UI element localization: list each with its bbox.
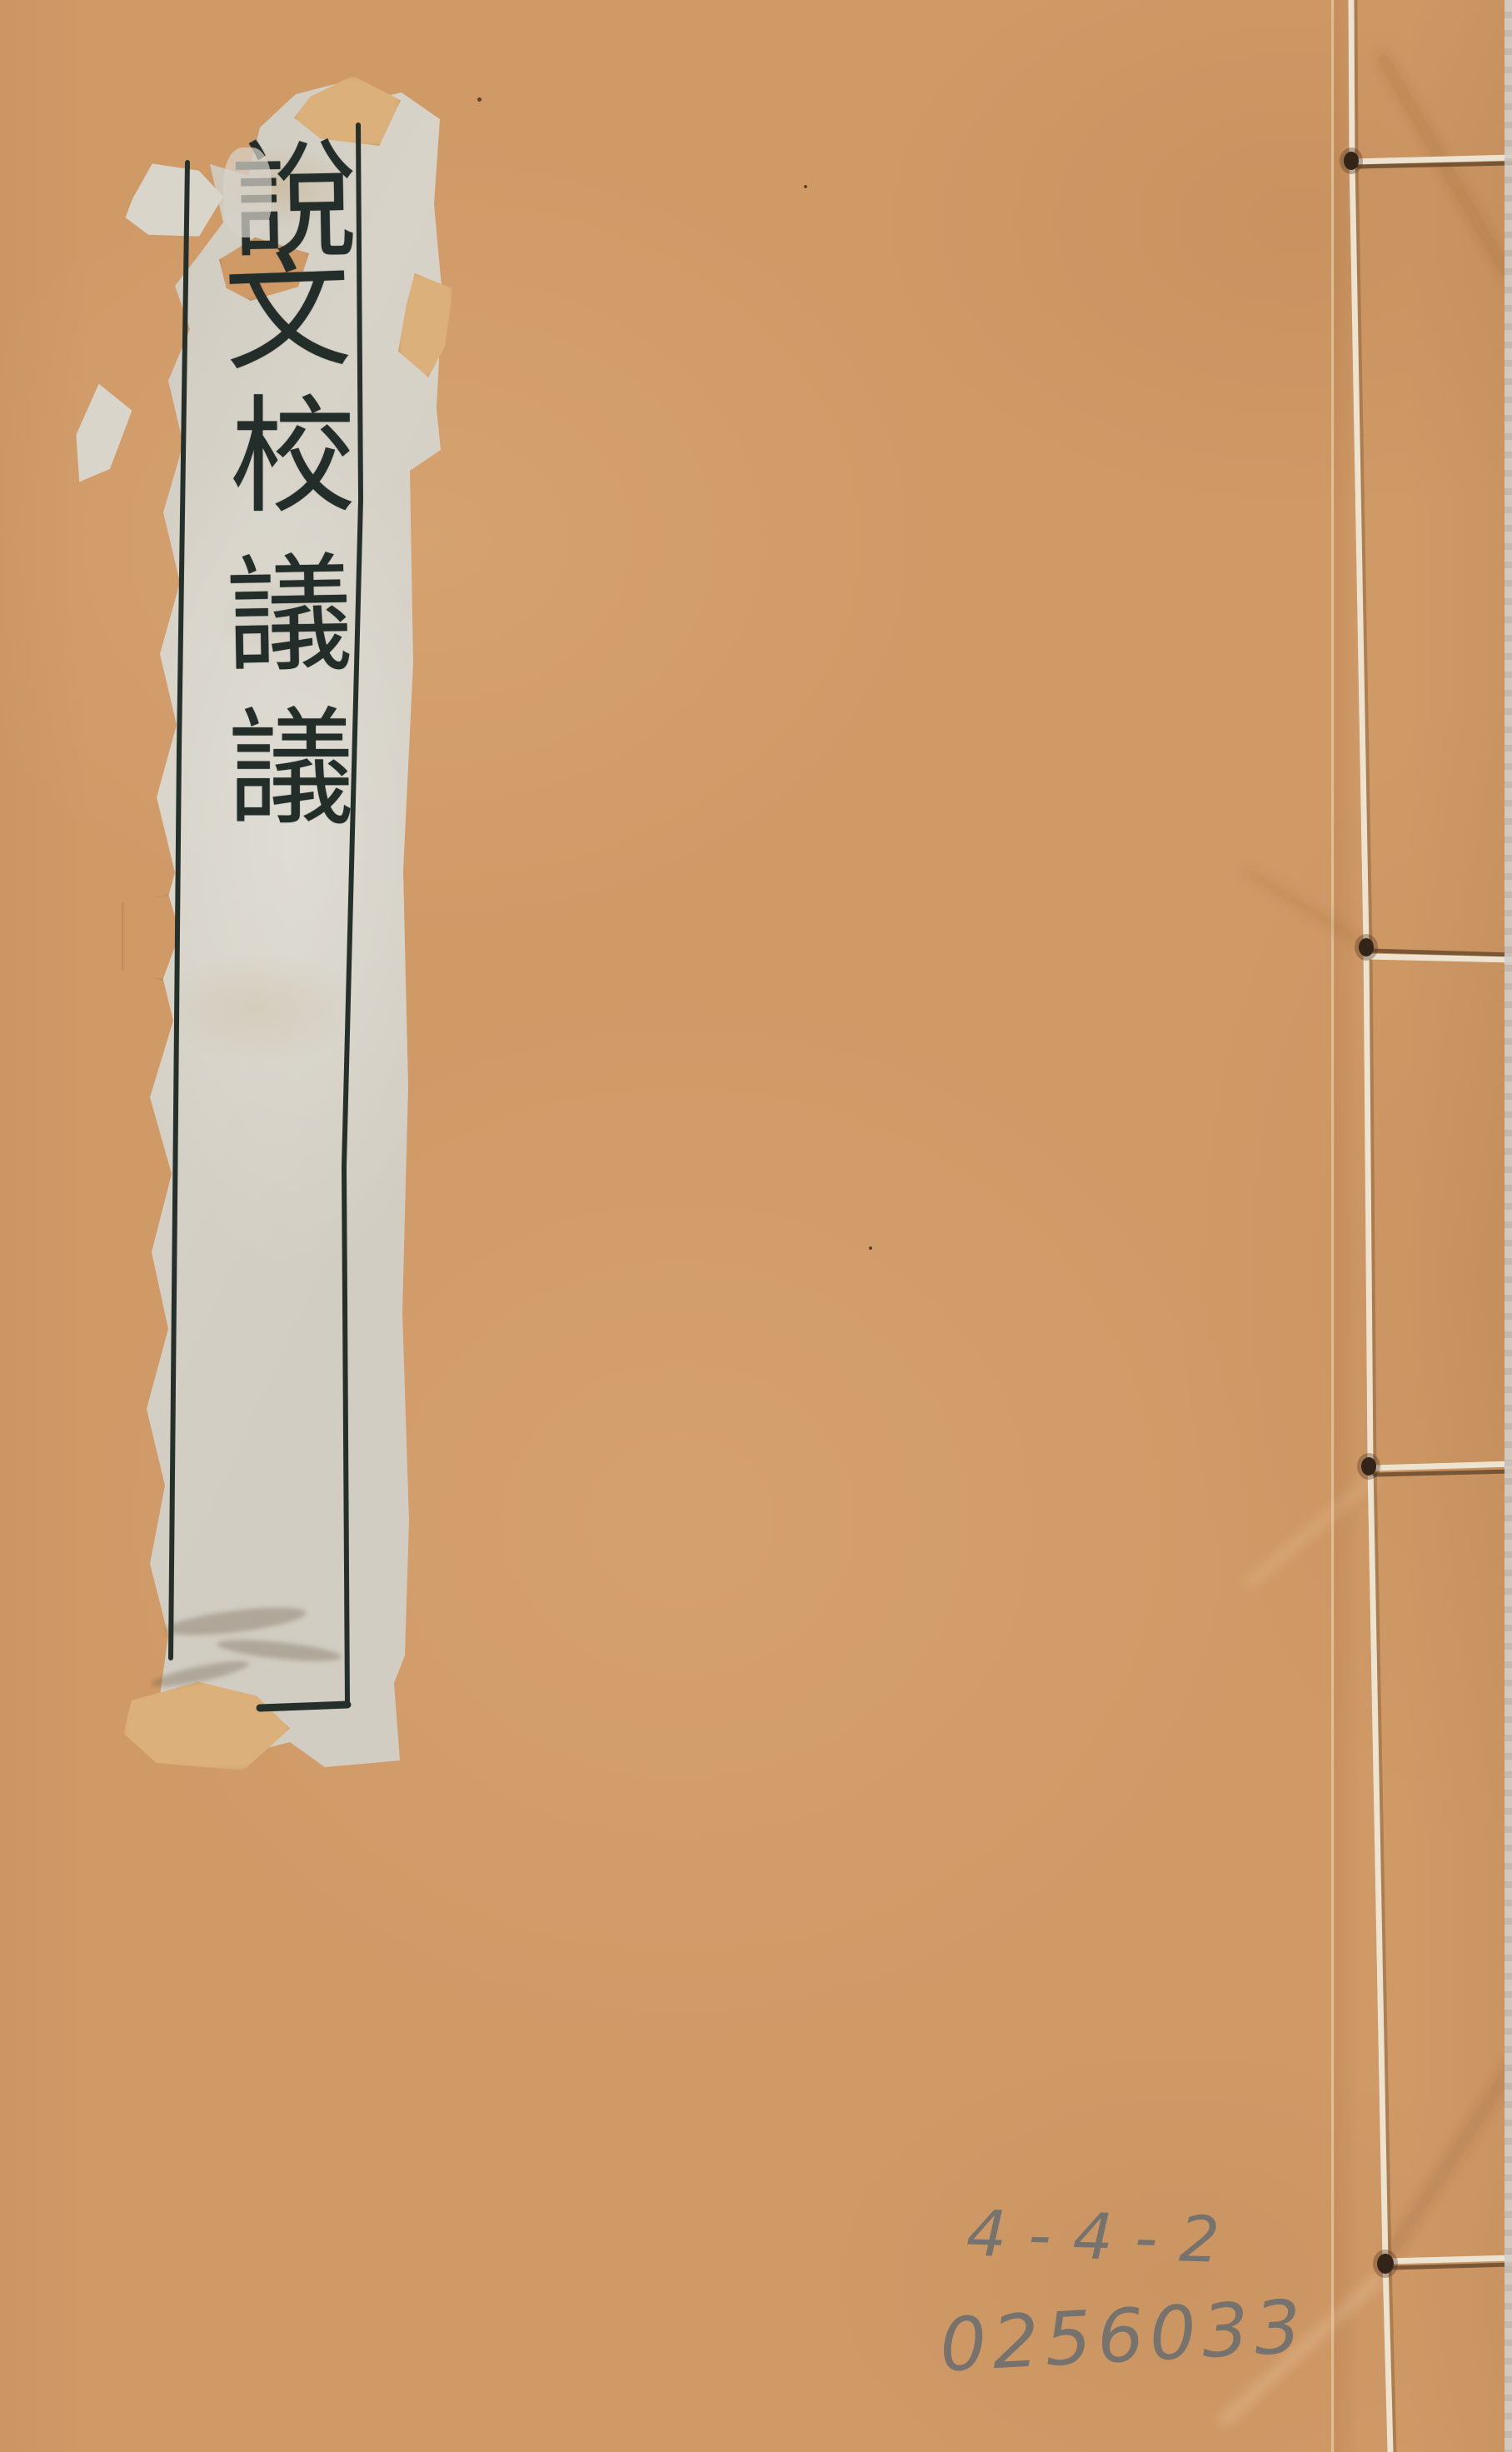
wrinkle-shading — [1225, 58, 1512, 2420]
handwritten-number-top: 4-4-2 — [966, 2196, 1242, 2278]
cover-crease-shadow — [1335, 0, 1360, 2452]
book-cover-paper: 說 文 校 議 議 — [0, 0, 1512, 2452]
label-fragment — [65, 382, 136, 490]
binding-thread-vertical — [1351, 0, 1392, 2452]
title-label: 說 文 校 議 議 — [117, 79, 446, 1779]
paper-speck — [477, 97, 482, 102]
title-char-5: 議 — [218, 706, 364, 832]
title-char-3: 校 — [220, 394, 366, 521]
binding-thread-horizontal-1 — [1353, 157, 1512, 167]
paper-speck — [804, 185, 807, 188]
title-text-column: 說 文 校 議 議 — [215, 79, 369, 1779]
scan-edge-strip — [1505, 0, 1512, 2452]
ink-wear-patch — [223, 147, 272, 237]
paper-speck — [869, 1246, 872, 1250]
binding-thread-horizontal-4 — [1387, 2258, 1512, 2268]
binding-thread-horizontal-3 — [1372, 1464, 1512, 1475]
binding-thread-horizontal-2 — [1368, 951, 1512, 960]
title-char-2: 文 — [212, 247, 362, 379]
stitch-holes — [1340, 147, 1398, 2278]
title-char-4: 議 — [216, 551, 364, 680]
cover-crease-highlight — [1331, 0, 1334, 2452]
handwritten-number-bottom: 0256033 — [938, 2284, 1310, 2389]
